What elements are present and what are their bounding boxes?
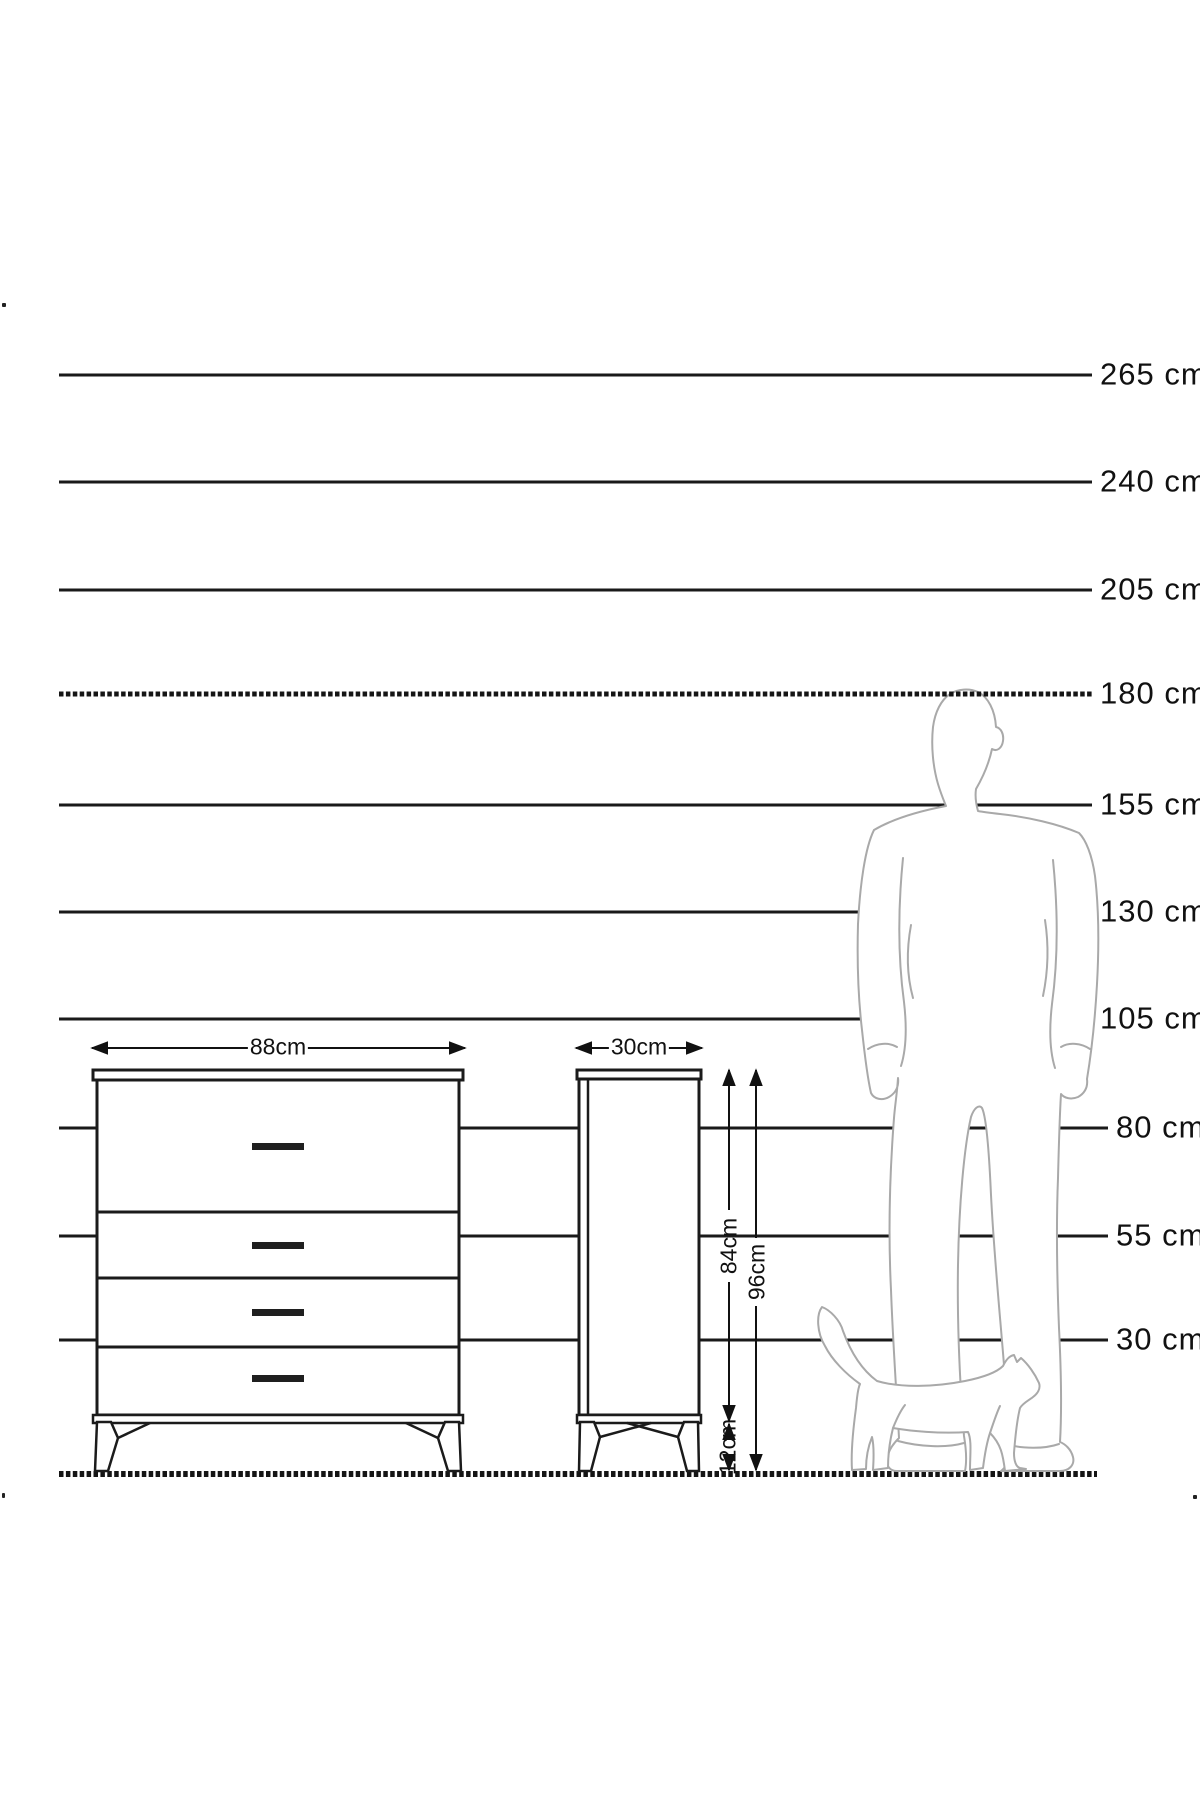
side-leg xyxy=(678,1422,699,1471)
dresser-leg-strut xyxy=(406,1423,438,1438)
height-label-240: 240 cm xyxy=(1100,463,1200,499)
dimension-label-width: 88cm xyxy=(248,1033,308,1060)
drawer-handle xyxy=(252,1375,304,1382)
diagram-canvas: 265 cm 240 cm 205 cm 180 cm 155 cm 130 c… xyxy=(0,0,1200,1800)
drawer-handle xyxy=(252,1309,304,1316)
drawer-handle xyxy=(252,1143,304,1150)
dresser-front-view xyxy=(93,1070,463,1471)
side-body xyxy=(579,1079,699,1415)
height-label-130: 130 cm xyxy=(1100,893,1200,929)
dresser-side-view xyxy=(577,1070,701,1471)
side-leg xyxy=(579,1422,600,1471)
scale-drawing xyxy=(0,0,1200,1800)
height-label-30: 30 cm xyxy=(1116,1321,1200,1357)
dresser-leg xyxy=(438,1422,461,1471)
dresser-leg xyxy=(95,1422,118,1471)
man-silhouette xyxy=(858,690,1099,1471)
side-base-strip xyxy=(577,1415,701,1423)
height-label-180: 180 cm xyxy=(1100,675,1200,711)
dimension-label-total-height: 96cm xyxy=(744,1244,771,1300)
scan-speck xyxy=(2,303,6,307)
height-reference-lines-upper xyxy=(59,375,1093,694)
side-leg-strut xyxy=(627,1423,678,1437)
height-label-265: 265 cm xyxy=(1100,356,1200,392)
dimension-label-depth: 30cm xyxy=(609,1033,669,1060)
height-label-55: 55 cm xyxy=(1116,1217,1200,1253)
height-label-105: 105 cm xyxy=(1100,1000,1200,1036)
dresser-base-strip xyxy=(93,1415,463,1423)
dimension-label-body-height: 84cm xyxy=(716,1218,743,1274)
side-leg-strut xyxy=(600,1423,651,1437)
height-label-205: 205 cm xyxy=(1100,571,1200,607)
dresser-leg-strut xyxy=(118,1423,150,1438)
scan-speck xyxy=(2,1493,5,1498)
dimension-label-leg-height: 12cm xyxy=(715,1419,742,1475)
scan-speck xyxy=(1193,1495,1197,1499)
height-label-80: 80 cm xyxy=(1116,1109,1200,1145)
drawer-handle xyxy=(252,1242,304,1249)
height-label-155: 155 cm xyxy=(1100,786,1200,822)
